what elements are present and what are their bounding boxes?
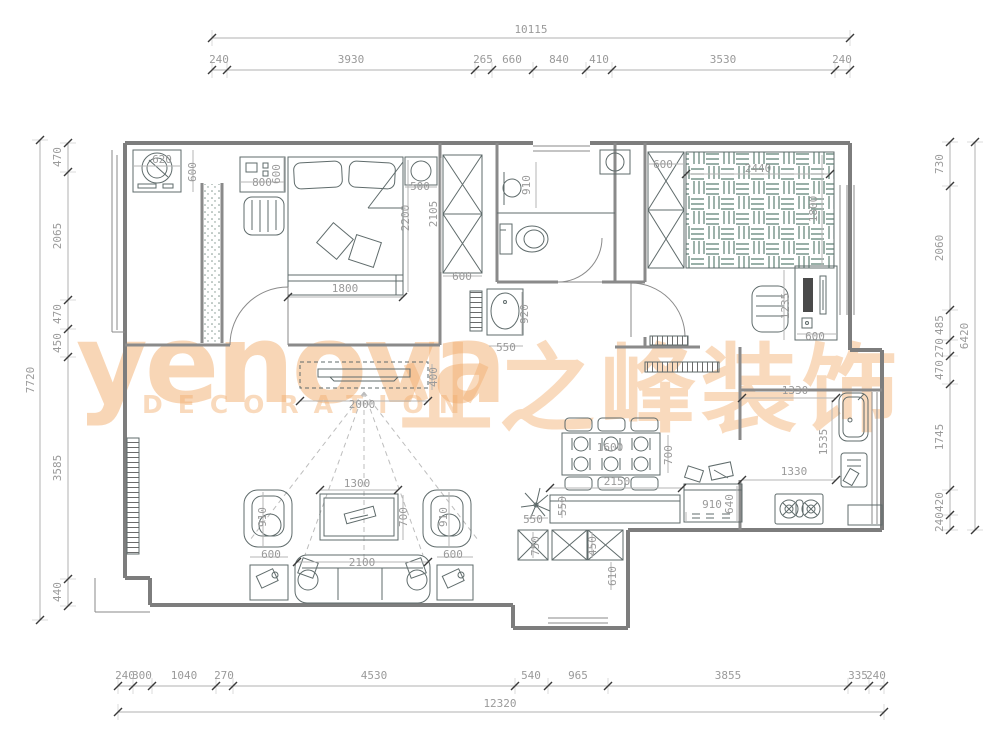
dimension-chains: 1011524039302656608404103530240772047020… [24,23,983,720]
bathroom-fixtures [497,150,630,254]
dim-label: 600 [653,158,673,171]
double-bed [288,157,403,295]
dim-label: 600 [805,330,825,343]
dim-label: 550 [556,496,569,516]
kitchen-unit [841,453,867,487]
sideboard [550,495,680,523]
dim-label: 400 [427,367,440,387]
dim-label: 270 [214,669,234,682]
bathroom-sink [503,179,521,197]
dim-label: 485 [933,315,946,335]
dim-label: 965 [568,669,588,682]
dim-label: 10115 [514,23,547,36]
dim-label: 1300 [344,477,371,490]
dim-label: 450 [586,536,599,556]
dim-label: 3855 [715,669,742,682]
dim-label: 2150 [604,475,631,488]
dim-label: 1330 [781,465,808,478]
floorplan-canvas: yenova DECORATION 业之峰装饰 [0,0,1000,750]
hall-rack-2 [645,362,719,372]
dim-label: 700 [397,507,410,527]
dim-label: 2065 [51,223,64,250]
dim-label: 600 [452,270,472,283]
dim-label: 335 [848,669,868,682]
dim-label: 620 [152,153,172,166]
dim-label: 12320 [483,697,516,710]
desk-bedroom2 [795,266,837,340]
dim-label: 4530 [361,669,388,682]
dim-label: 2105 [427,201,440,228]
dim-label: 1235 [779,293,792,320]
dim-label: 910 [437,507,450,527]
dim-label: 1745 [933,424,946,451]
dim-label: 540 [521,669,541,682]
dim-label: 610 [606,566,619,586]
dim-label: 700 [662,445,675,465]
dim-label: 470 [51,147,64,167]
dim-label: 1600 [597,441,624,454]
dim-label: 410 [589,53,609,66]
side-table-left [250,565,288,600]
dim-label: 2060 [933,235,946,262]
dim-label: 240 [209,53,229,66]
towel-radiator [470,291,482,331]
dim-label: 420 [933,492,946,512]
dim-label: 3930 [338,53,365,66]
side-table-right [437,565,473,600]
dim-label: 660 [502,53,522,66]
dim-label: 800 [252,176,272,189]
dim-label: 640 [723,494,736,514]
dim-label: 7720 [24,367,37,394]
door-bedroom1 [230,287,288,345]
dim-label: 440 [51,582,64,602]
dim-label: 3585 [51,455,64,482]
dim-label: 6420 [958,323,971,350]
floorplan-drawing: 1011524039302656608404103530240772047020… [0,0,1000,750]
dim-label: 270 [933,338,946,358]
gas-stove [775,494,823,524]
dim-label: 2200 [399,205,412,232]
dim-label: 550 [496,341,516,354]
dim-label: 920 [518,304,531,324]
dim-label: 2440 [745,162,772,175]
dim-label: 750 [529,536,542,556]
dim-label: 470 [51,304,64,324]
dim-label: 240 [832,53,852,66]
dim-label: 600 [270,164,283,184]
dim-label: 910 [256,507,269,527]
dim-label: 600 [261,548,281,561]
dim-label: 500 [410,180,430,193]
dim-label: 450 [51,333,64,353]
kitchen-sink [839,393,868,441]
dim-label: 240 [866,669,886,682]
hall-rack-1 [650,336,688,345]
dim-label: 265 [473,53,493,66]
hatched-wall [203,184,221,342]
dim-label: 1535 [817,429,830,456]
wardrobe-corridor [443,155,482,273]
door-bedroom2 [631,283,685,337]
dim-label: 1800 [807,196,820,223]
dim-label: 730 [933,154,946,174]
dim-label: 240 [933,512,946,532]
dim-label: 470 [933,360,946,380]
dim-label: 1330 [782,384,809,397]
living-radiator [127,438,139,554]
dim-label: 1040 [171,669,198,682]
tv-cabinet [300,362,428,388]
dim-label: 2000 [349,398,376,411]
dim-label: 910 [520,175,533,195]
bedroom1-armchair [244,197,284,235]
dim-label: 840 [549,53,569,66]
dim-label: 2100 [349,556,376,569]
dim-label: 600 [186,162,199,182]
dim-label: 910 [702,498,722,511]
door-bathroom [558,238,602,282]
coffee-table [320,494,398,540]
dim-label: 550 [523,513,543,526]
dim-label: 300 [132,669,152,682]
dim-label: 1800 [332,282,359,295]
dim-label: 3530 [710,53,737,66]
dim-label: 600 [443,548,463,561]
